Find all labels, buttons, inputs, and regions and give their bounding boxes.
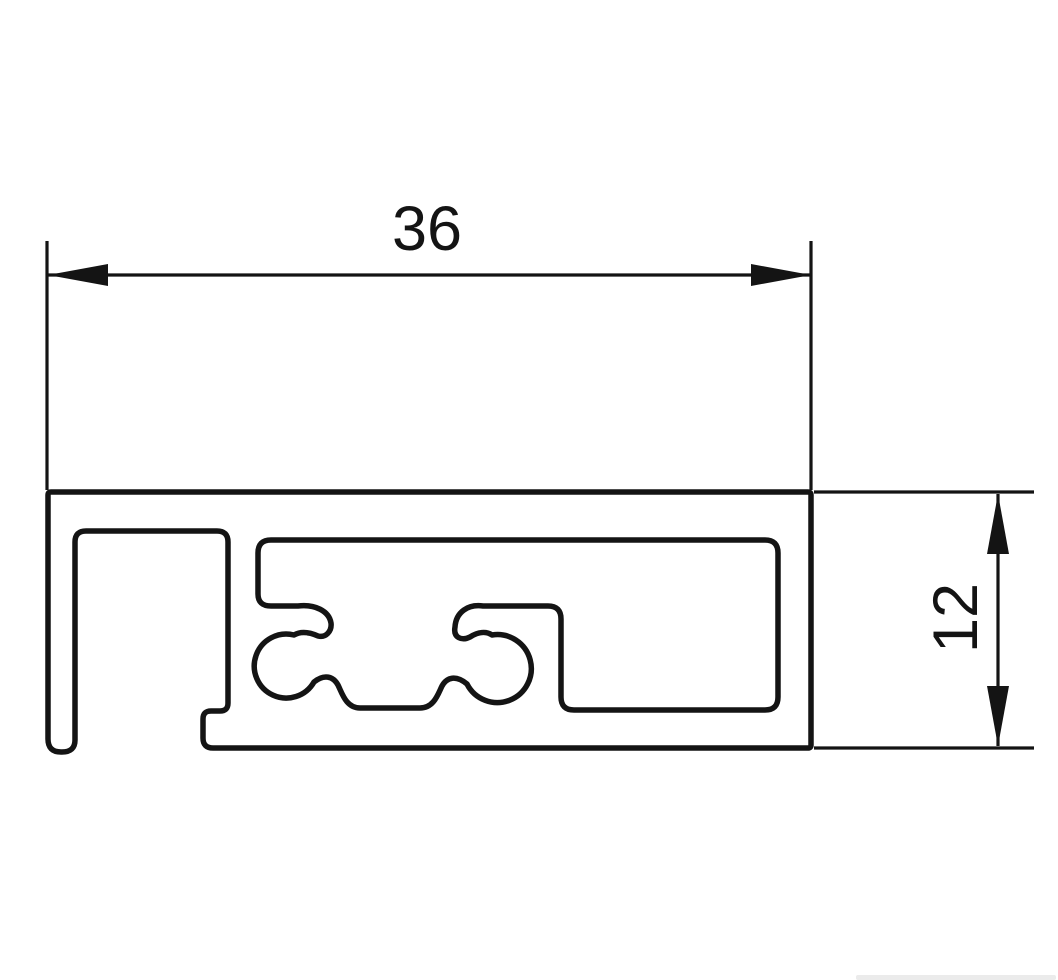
- width-arrow-right-icon: [751, 264, 811, 286]
- width-arrow-left-icon: [48, 264, 108, 286]
- faint-watermark-strip: [856, 975, 1056, 980]
- width-dimension: [47, 241, 811, 490]
- height-dimension-label: 12: [921, 583, 991, 653]
- width-dimension-label: 36: [392, 194, 462, 264]
- profile-drawing-canvas: 36 12: [0, 0, 1058, 980]
- height-arrow-down-icon: [987, 686, 1009, 746]
- profile-shape-group: [48, 492, 811, 752]
- profile-inner-cavity-outline: [254, 540, 778, 710]
- drawing-page: 36 12: [0, 0, 1058, 980]
- profile-outer-outline: [48, 492, 811, 752]
- height-arrow-up-icon: [987, 494, 1009, 554]
